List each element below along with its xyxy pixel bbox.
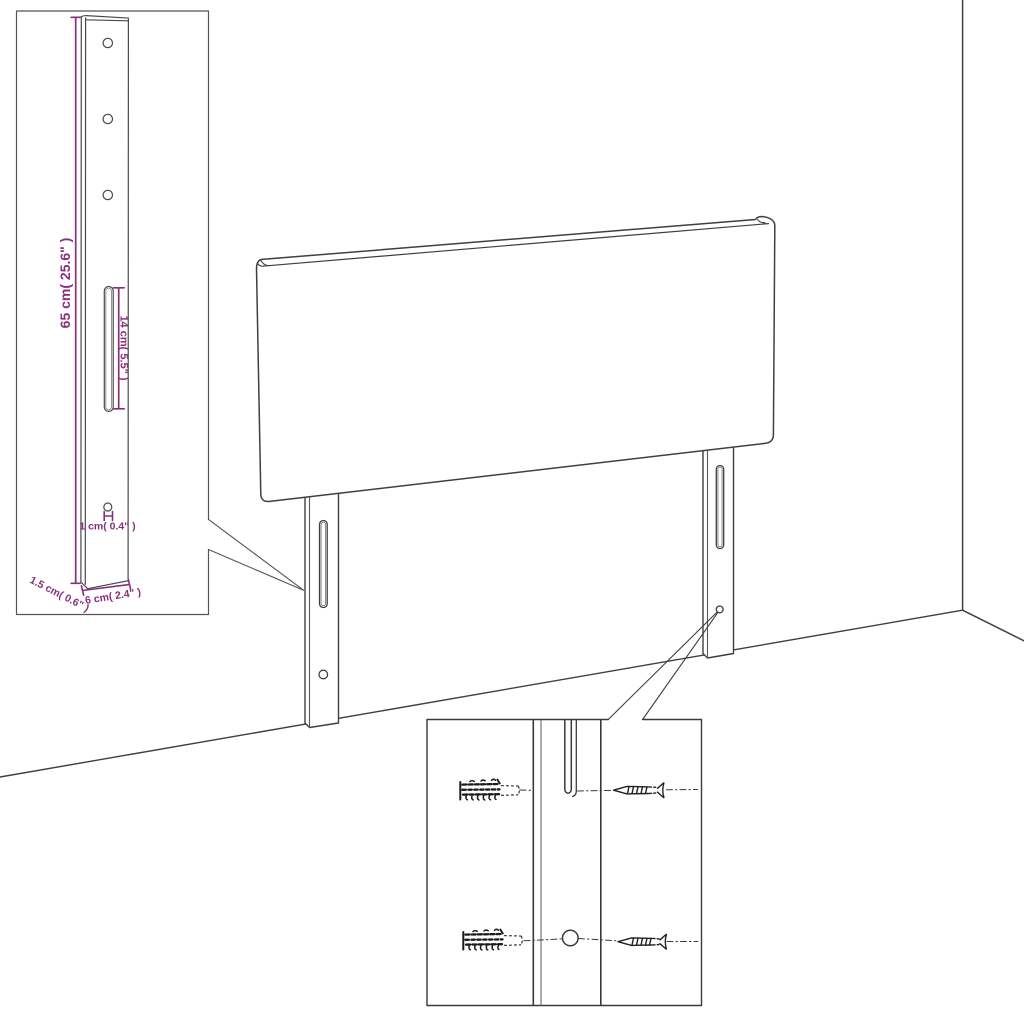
svg-text:14 cm( 5.5" ): 14 cm( 5.5" ) bbox=[118, 315, 130, 380]
svg-text:65 cm( 25.6" ): 65 cm( 25.6" ) bbox=[57, 238, 73, 329]
svg-text:1 cm( 0.4" ): 1 cm( 0.4" ) bbox=[79, 521, 135, 533]
